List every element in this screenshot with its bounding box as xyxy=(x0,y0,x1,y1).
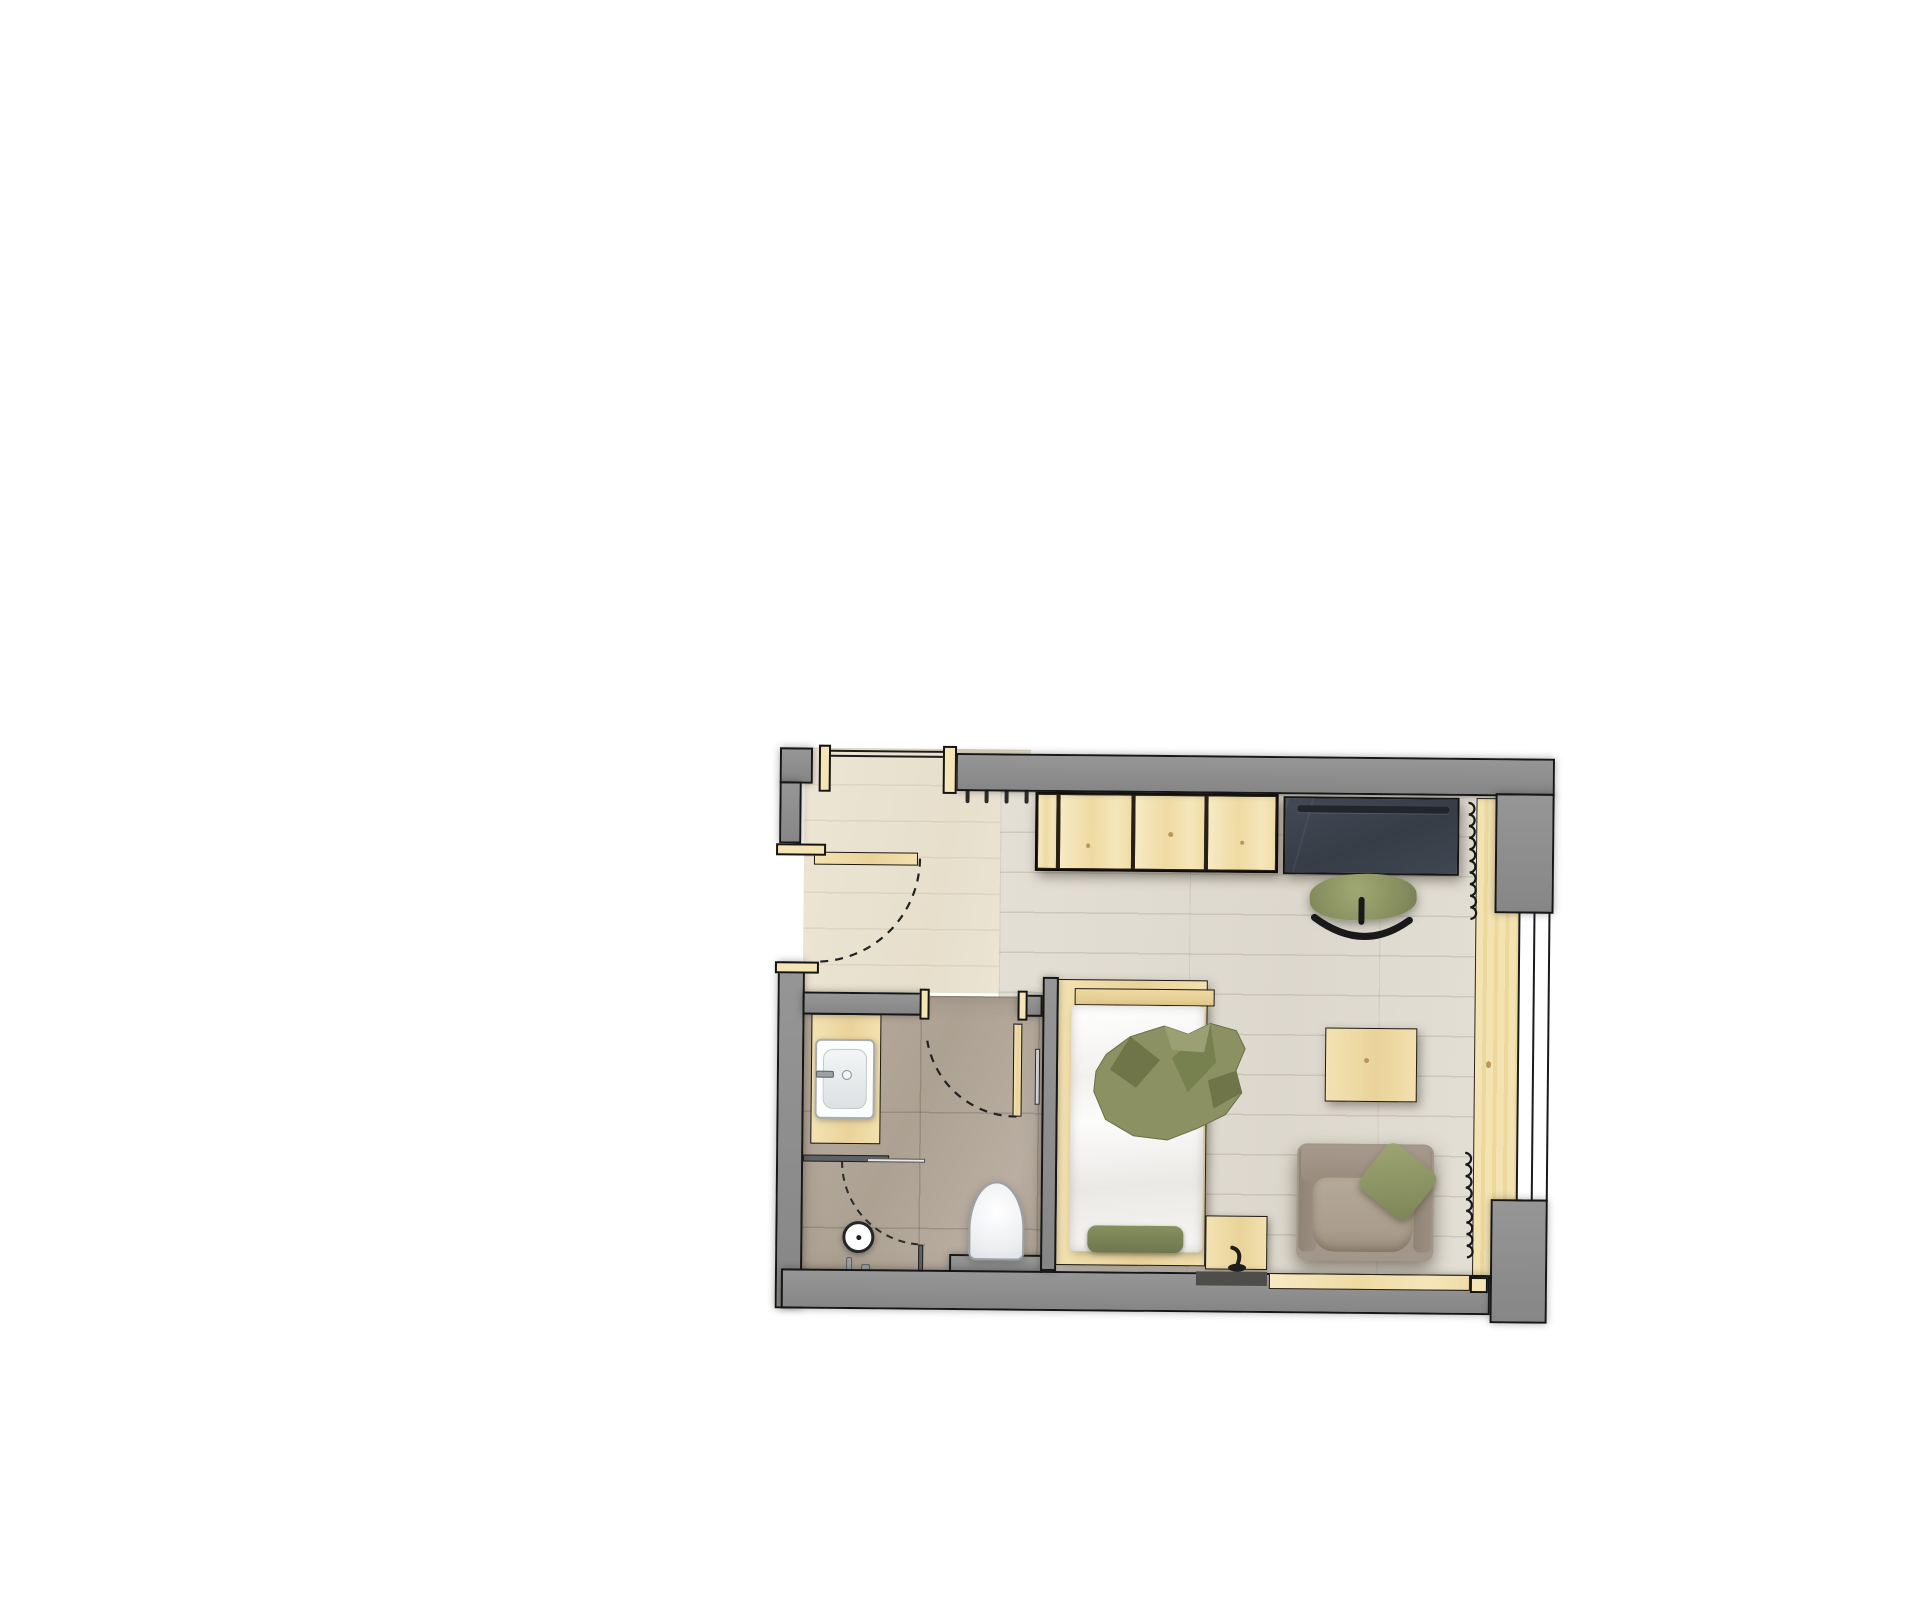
coat-hook-2 xyxy=(985,789,989,803)
wardrobe-knot-3 xyxy=(1240,841,1244,845)
coat-hook-4 xyxy=(1025,790,1029,804)
wall-left-mid xyxy=(779,781,802,843)
shower-partition-glass xyxy=(867,1158,925,1163)
wall-divider xyxy=(1040,977,1059,1271)
wall-left-upper xyxy=(780,747,813,783)
wall-left-lower xyxy=(775,961,805,1308)
jamb-entry-niche-right xyxy=(943,746,957,794)
sill-knot xyxy=(1486,1061,1491,1068)
wardrobe-knot-1 xyxy=(1086,843,1090,848)
bed-foot-cushion xyxy=(1087,1225,1183,1253)
bench-plank xyxy=(1269,1273,1470,1291)
wardrobe-door-1 xyxy=(1059,794,1133,870)
coat-hook-1 xyxy=(966,789,970,803)
wall-top xyxy=(956,753,1555,797)
door-entry-leaf xyxy=(814,852,918,866)
coat-hook-3 xyxy=(1005,789,1009,803)
wall-top-right-corner xyxy=(1494,793,1554,914)
bed-mattress xyxy=(1069,1005,1204,1252)
wardrobe-knot-2 xyxy=(1168,832,1173,837)
wall-bathroom-top xyxy=(802,992,924,1016)
nightstand-shelf-shadow xyxy=(1196,1271,1267,1286)
desk-chair-seat xyxy=(1309,873,1417,922)
shower-head-dot xyxy=(856,1235,861,1240)
jamb-entry-door-top xyxy=(776,843,826,855)
floor-plan-canvas xyxy=(0,0,1920,1616)
towel-rail xyxy=(1035,1049,1041,1105)
desk-pen-tray xyxy=(1297,805,1449,813)
side-table xyxy=(1325,1028,1418,1103)
door-bath-leaf xyxy=(1013,1024,1023,1117)
sink-drain xyxy=(842,1070,852,1080)
wardrobe-door-3 xyxy=(1207,795,1277,871)
floor-plan xyxy=(765,736,1561,1334)
bed-headboard xyxy=(1075,988,1215,1006)
wardrobe-side-panel xyxy=(1037,794,1058,869)
jamb-bath-door-left xyxy=(919,989,929,1020)
jamb-entry-door-bottom xyxy=(775,961,819,973)
jamb-sill-end-cap xyxy=(1470,1277,1488,1293)
nightstand xyxy=(1205,1215,1268,1270)
jamb-entry-niche-left xyxy=(819,745,831,792)
side-table-knot xyxy=(1364,1058,1369,1063)
wall-bottom-right-corner xyxy=(1490,1199,1548,1324)
jamb-bath-door-right xyxy=(1017,991,1027,1021)
sink-faucet-handle xyxy=(816,1071,834,1078)
